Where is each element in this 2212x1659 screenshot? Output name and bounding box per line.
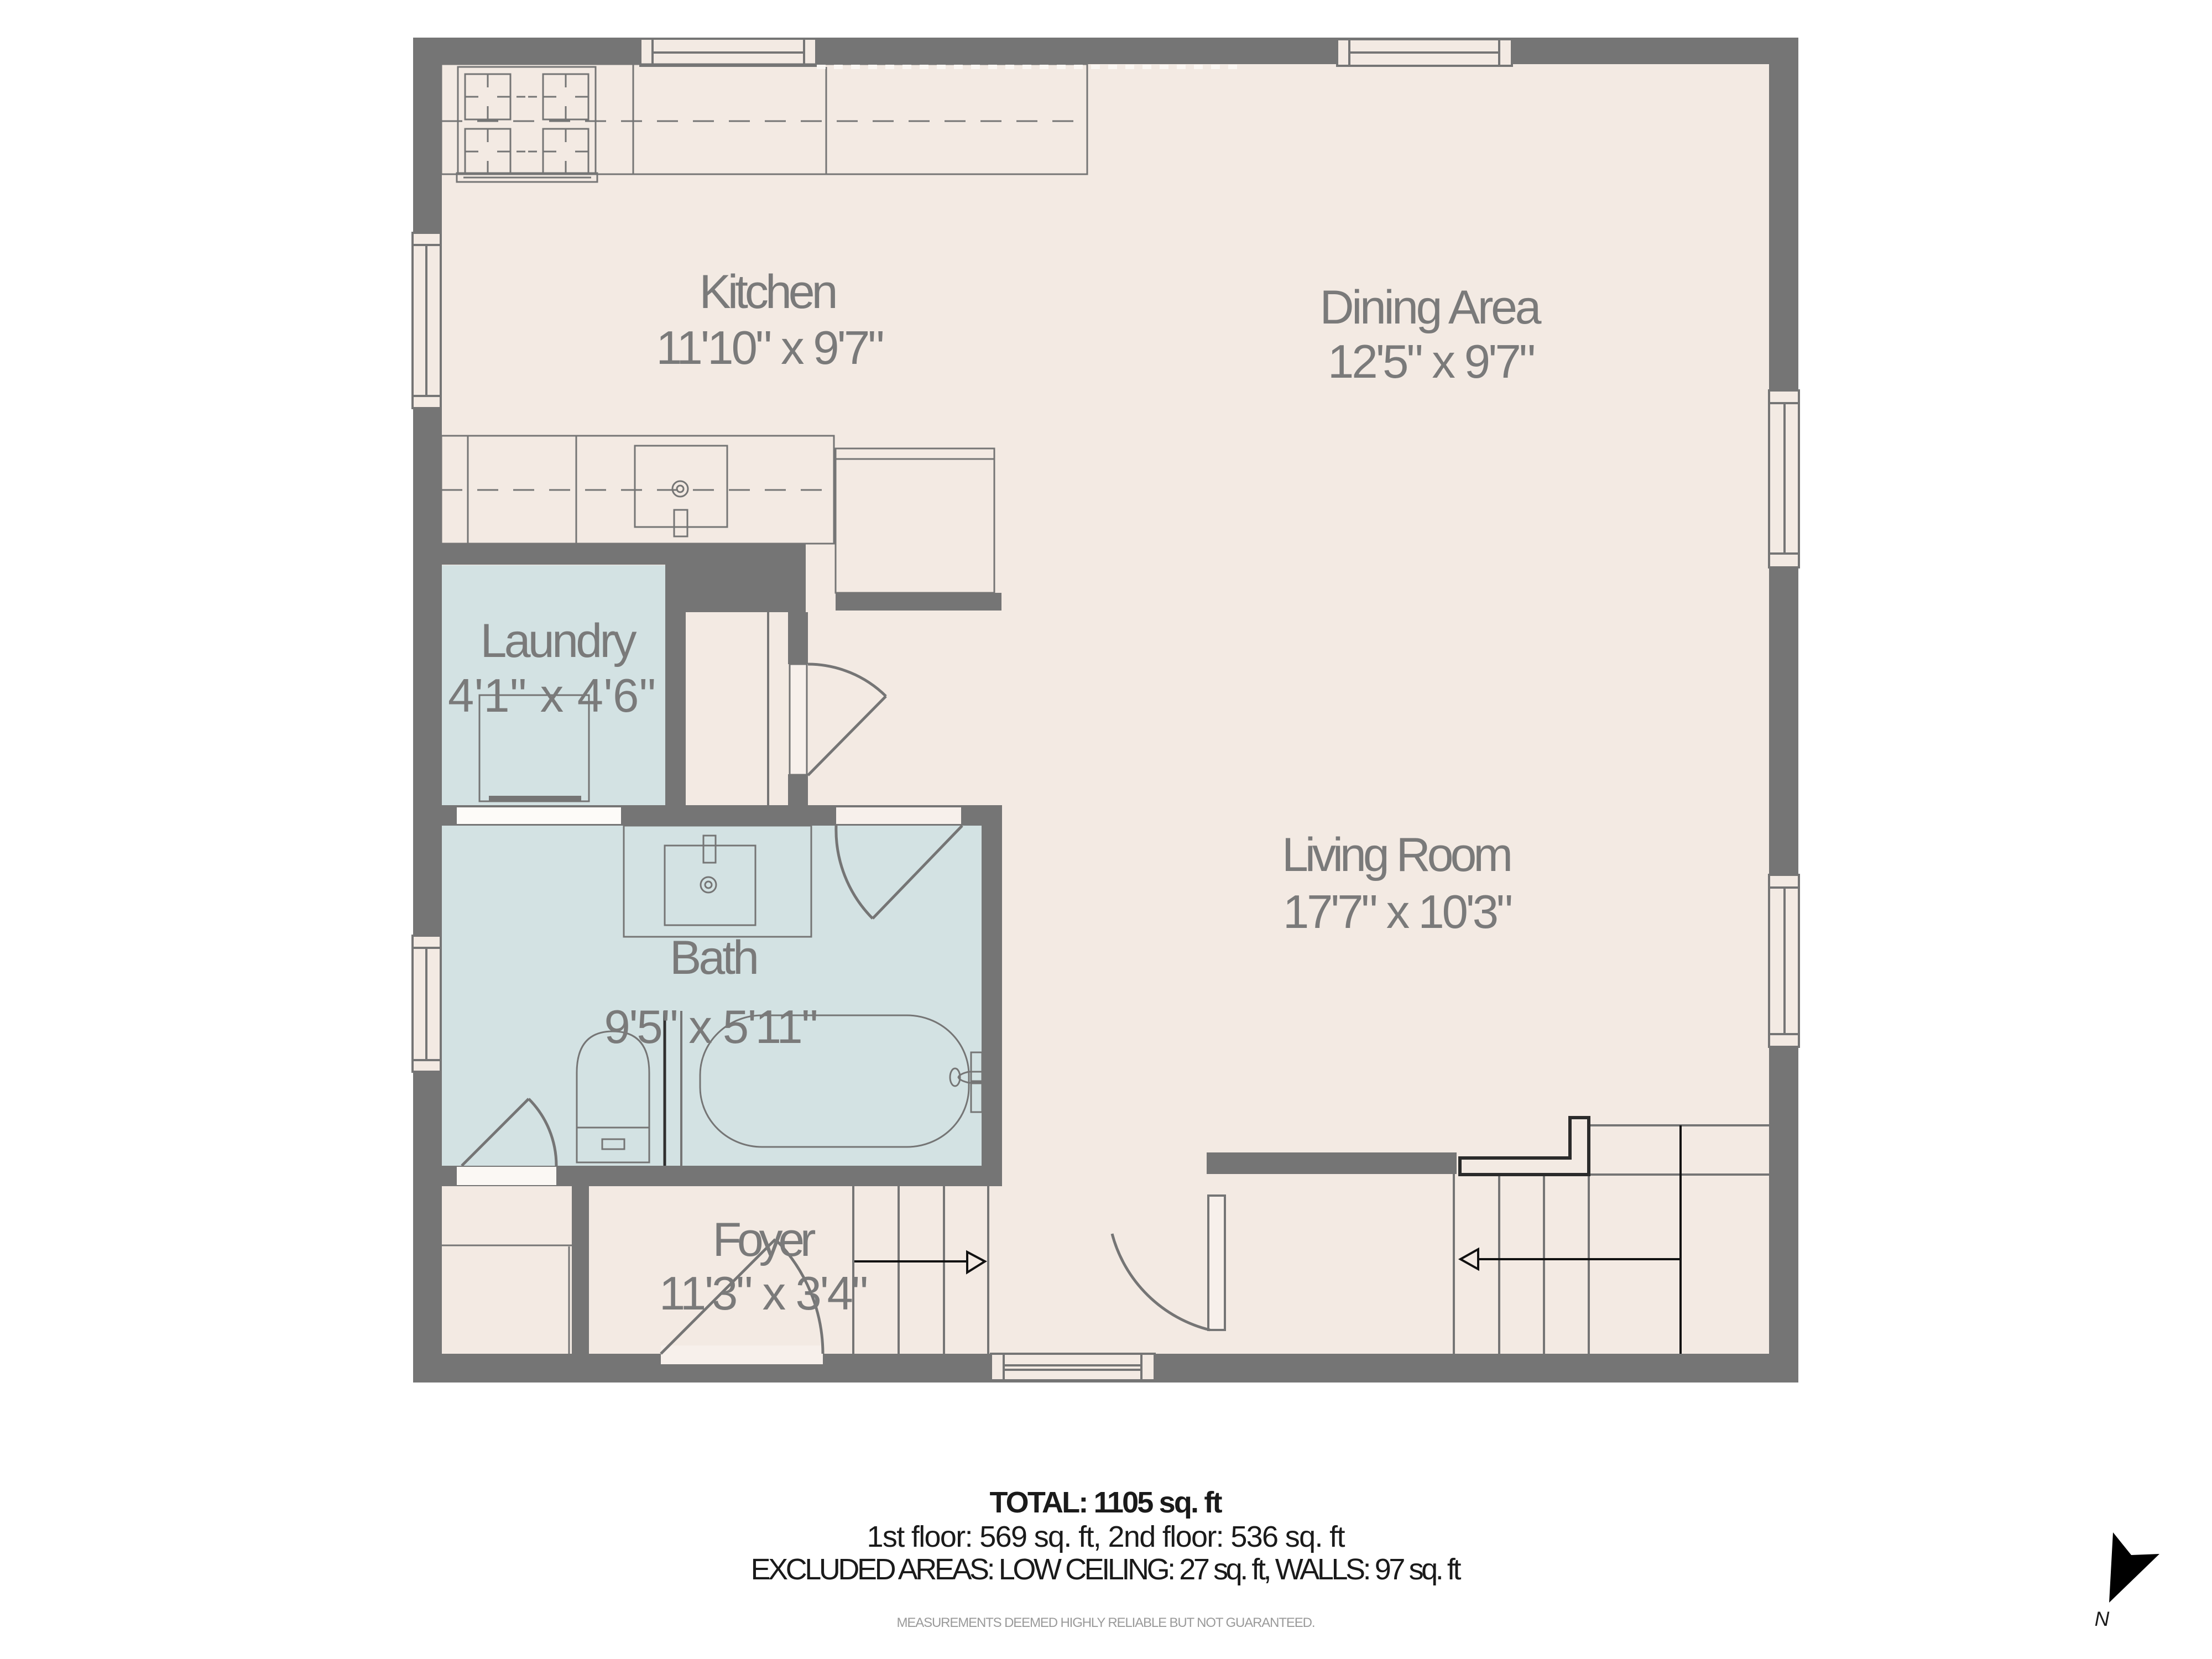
svg-text:N: N <box>2095 1608 2110 1630</box>
svg-text:Laundry: Laundry <box>481 614 637 667</box>
svg-text:Foyer: Foyer <box>713 1213 816 1266</box>
svg-text:1st floor: 569 sq. ft, 2nd flo: 1st floor: 569 sq. ft, 2nd floor: 536 sq… <box>867 1520 1345 1553</box>
svg-text:Bath: Bath <box>670 931 759 984</box>
svg-text:17'7" x 10'3": 17'7" x 10'3" <box>1283 886 1513 938</box>
svg-text:9'5" x 5'11": 9'5" x 5'11" <box>604 1001 818 1053</box>
svg-text:4'1" x 4'6": 4'1" x 4'6" <box>448 670 656 722</box>
svg-text:TOTAL: 1105 sq. ft: TOTAL: 1105 sq. ft <box>990 1486 1223 1519</box>
svg-text:11'3" x 3'4": 11'3" x 3'4" <box>659 1267 868 1320</box>
svg-text:12'5" x 9'7": 12'5" x 9'7" <box>1328 336 1536 388</box>
svg-text:EXCLUDED AREAS: LOW CEILING: 2: EXCLUDED AREAS: LOW CEILING: 27 sq. ft, … <box>751 1553 1462 1586</box>
svg-text:Living Room: Living Room <box>1282 828 1513 881</box>
svg-text:MEASUREMENTS DEEMED HIGHLY REL: MEASUREMENTS DEEMED HIGHLY RELIABLE BUT … <box>897 1615 1316 1630</box>
svg-text:11'10" x 9'7": 11'10" x 9'7" <box>656 322 885 374</box>
svg-text:Dining Area: Dining Area <box>1320 281 1542 334</box>
svg-text:Kitchen: Kitchen <box>700 265 838 319</box>
